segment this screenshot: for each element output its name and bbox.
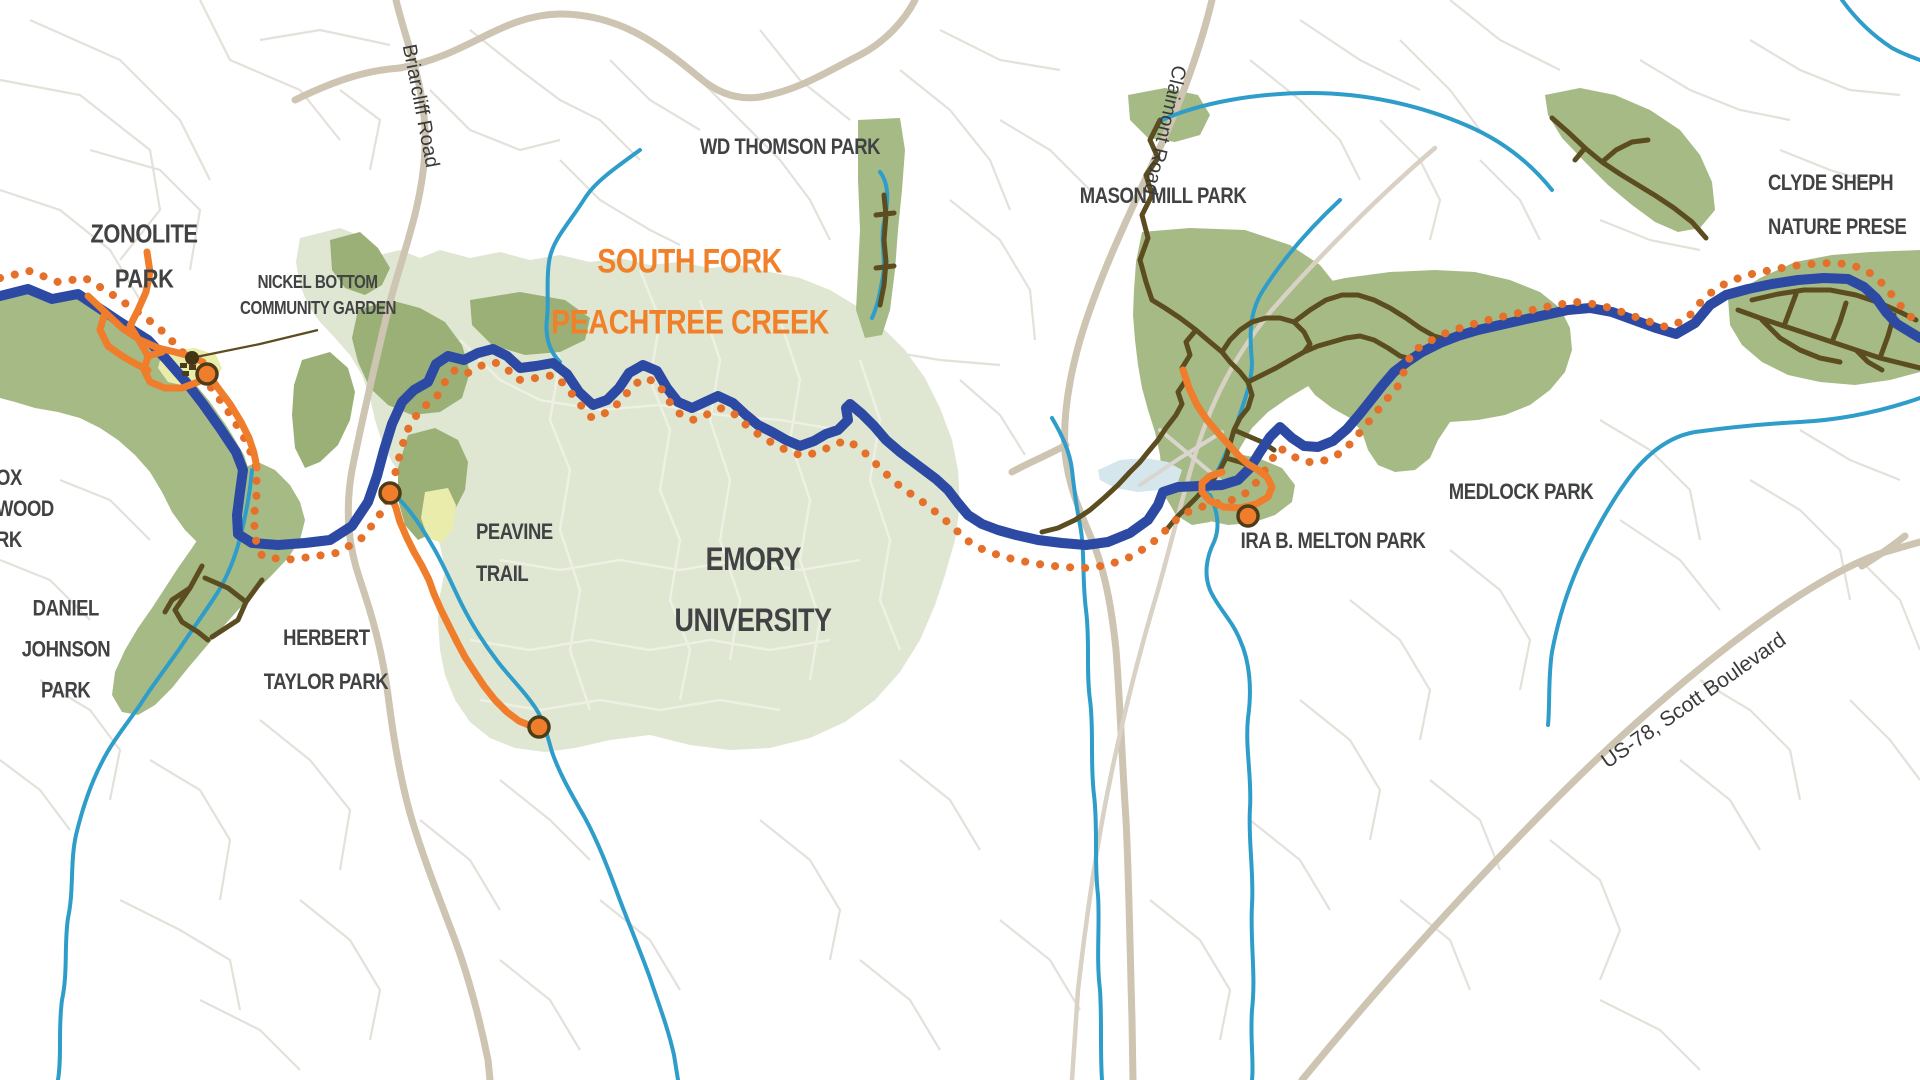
trailhead-marker-peavine-north (380, 483, 400, 503)
woods-patch (292, 352, 355, 468)
label-medlock-park: MEDLOCK PARK (1435, 479, 1607, 505)
label-emory-university: EMORY UNIVERSITY (659, 529, 846, 651)
label-peavine-trail: PEAVINE TRAIL (476, 511, 567, 595)
label-west-edge-park-partial: OX WOOD RK (0, 462, 65, 556)
map-canvas (0, 0, 1920, 1080)
us78-scott-boulevard-road (1302, 542, 1920, 1080)
label-nickel-bottom-garden: NICKEL BOTTOM COMMUNITY GARDEN (225, 269, 411, 321)
label-leader-line (196, 330, 318, 357)
trailhead-marker-peavine-south (529, 717, 549, 737)
north-woods-area (1545, 88, 1715, 232)
top-arc-road (295, 0, 915, 100)
label-herbert-taylor-park: HERBERT TAYLOR PARK (252, 616, 400, 704)
trailhead-marker-ira-melton (1238, 506, 1258, 526)
trailhead-marker-zonolite (197, 364, 217, 384)
label-clyde-shepherd-preserve: CLYDE SHEPH NATURE PRESE (1768, 161, 1920, 249)
garden-point-marker (185, 351, 199, 365)
creek-line (1842, 0, 1920, 60)
label-wd-thomson-park: WD THOMSON PARK (683, 134, 898, 160)
label-daniel-johnson-park: DANIEL JOHNSON PARK (13, 589, 118, 712)
label-ira-melton-park: IRA B. MELTON PARK (1223, 528, 1443, 554)
label-zonolite-park: ZONOLITE PARK (80, 211, 207, 300)
label-mason-mill-park: MASON MILL PARK (1064, 183, 1262, 209)
label-south-fork-peachtree-creek: SOUTH FORK PEACHTREE CREEK (525, 231, 856, 352)
trail-map: ZONOLITE PARK NICKEL BOTTOM COMMUNITY GA… (0, 0, 1920, 1080)
